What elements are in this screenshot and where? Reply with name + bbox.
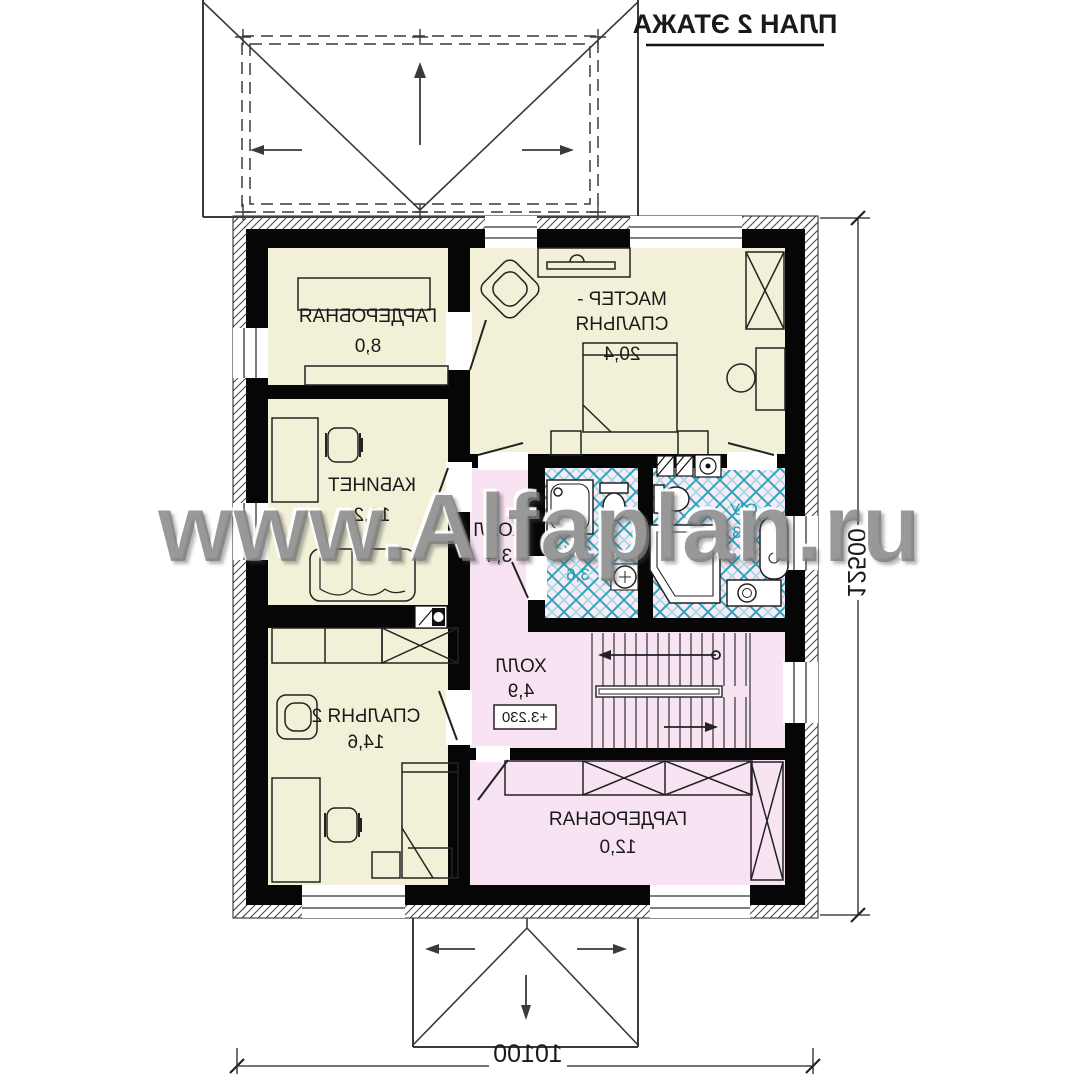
label-wardrobe-bottom-name: ГАРДЕРОБНАЯ xyxy=(549,809,687,830)
label-bedroom2-name: СПАЛЬНЯ 2 xyxy=(312,706,421,727)
title-block: ПЛАН 2 ЭТАЖА xyxy=(633,9,838,45)
window-bottom-bedroom2 xyxy=(302,885,405,918)
dimension-width-value: 10100 xyxy=(493,1040,563,1068)
window-top-master-2 xyxy=(630,216,742,248)
window-left-wardrobe xyxy=(233,328,268,378)
roof-porch xyxy=(413,918,638,1047)
window-right-stairs xyxy=(783,662,818,723)
page-title: ПЛАН 2 ЭТАЖА xyxy=(633,9,838,39)
level-mark: +3.230 xyxy=(502,709,548,726)
label-hall-stairs-name: ХОЛЛ xyxy=(495,656,547,677)
window-top-master-1 xyxy=(485,216,537,248)
room-bedroom2-floor xyxy=(268,628,448,885)
shaft-icon xyxy=(415,606,447,628)
label-master-name1: МАСТЕР - xyxy=(577,289,667,310)
porch-slope-arrows xyxy=(425,944,627,1020)
floor-plan-page: ГАРДЕРОБНАЯ 8,0 МАСТЕР - СПАЛЬНЯ 20,4 КА… xyxy=(0,0,1080,1080)
watermark: www.Alfaplan.ru xyxy=(0,474,1080,584)
label-hall-stairs-area: 4,9 xyxy=(508,681,534,702)
window-bottom-wardrobe xyxy=(650,885,750,918)
label-wardrobe-top-name: ГАРДЕРОБНАЯ xyxy=(299,306,437,327)
roof-top xyxy=(203,0,638,220)
label-master-name2: СПАЛЬНЯ xyxy=(576,314,669,335)
label-wardrobe-bottom-area: 12,0 xyxy=(600,837,637,858)
label-bedroom2-area: 14,6 xyxy=(348,732,385,753)
dimension-bottom: 10100 xyxy=(230,1040,820,1074)
label-master-area: 20,4 xyxy=(603,344,640,365)
stair-rail xyxy=(596,686,722,697)
label-wardrobe-top-area: 8,0 xyxy=(355,336,381,357)
